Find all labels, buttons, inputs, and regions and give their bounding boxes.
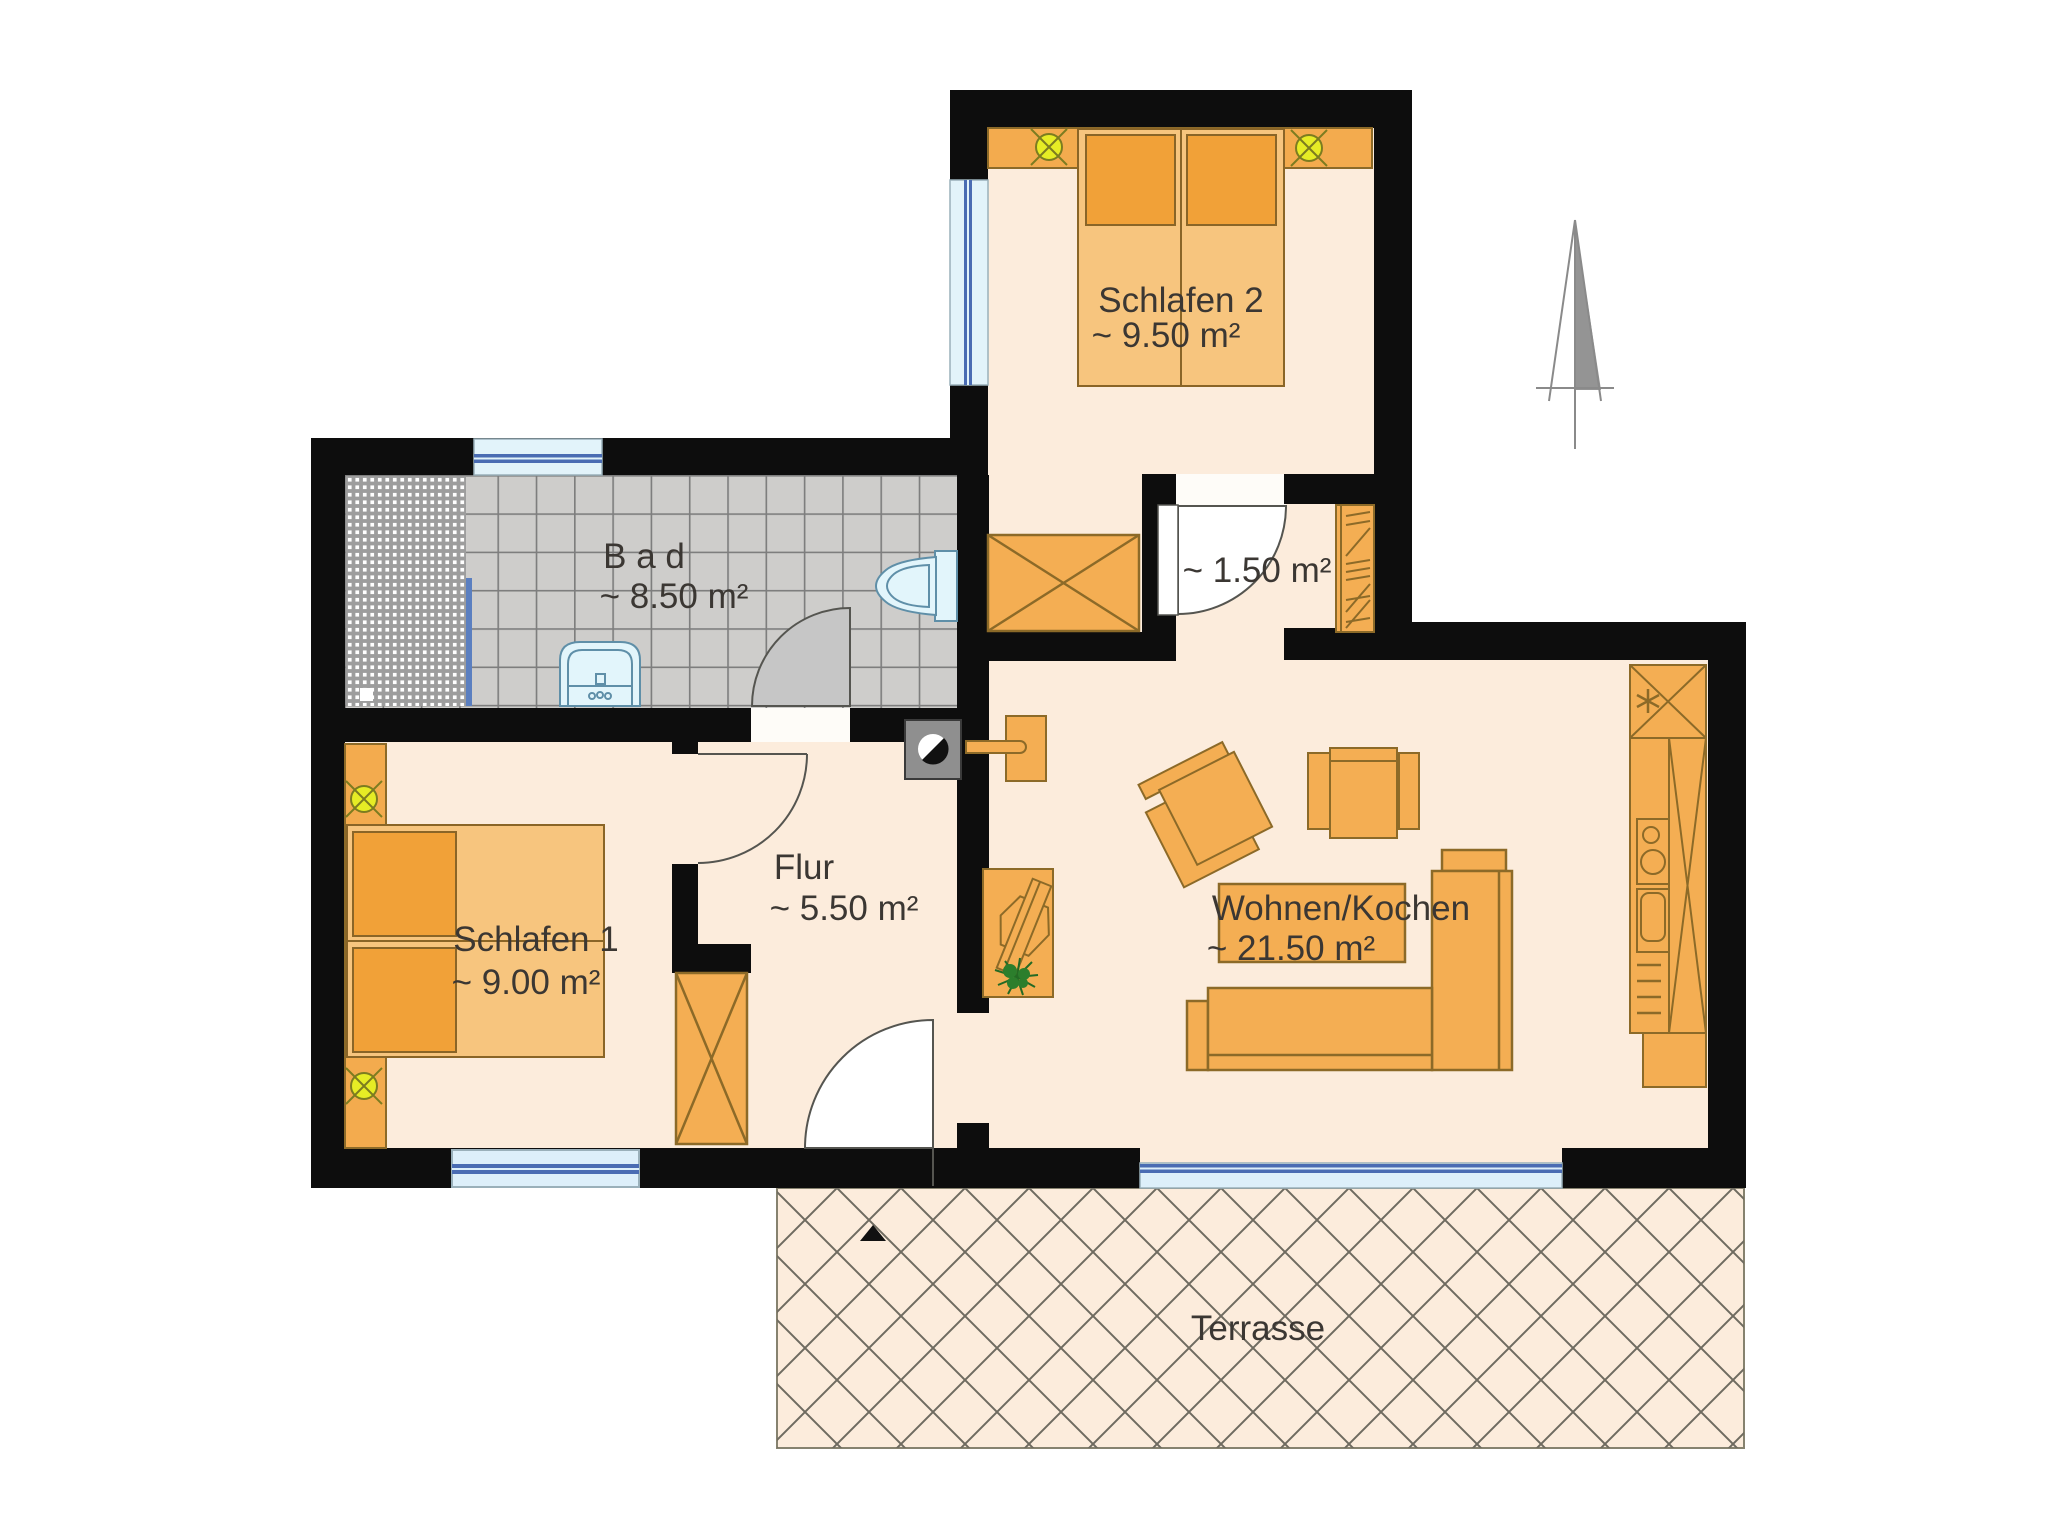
svg-text:~ 21.50 m²: ~ 21.50 m² [1207,929,1375,968]
svg-text:Terrasse: Terrasse [1191,1309,1325,1348]
svg-text:~ 9.50 m²: ~ 9.50 m² [1092,316,1241,355]
svg-text:B a d: B a d [603,537,685,576]
svg-text:~ 1.50 m²: ~ 1.50 m² [1183,551,1332,590]
svg-text:~ 8.50 m²: ~ 8.50 m² [600,577,749,616]
svg-text:Flur: Flur [774,848,835,887]
svg-text:Wohnen/Kochen: Wohnen/Kochen [1212,889,1470,928]
svg-text:Schlafen 2: Schlafen 2 [1098,281,1263,320]
svg-text:~ 5.50 m²: ~ 5.50 m² [770,889,919,928]
svg-text:~ 9.00 m²: ~ 9.00 m² [452,963,601,1002]
svg-text:Schlafen 1: Schlafen 1 [453,920,618,959]
